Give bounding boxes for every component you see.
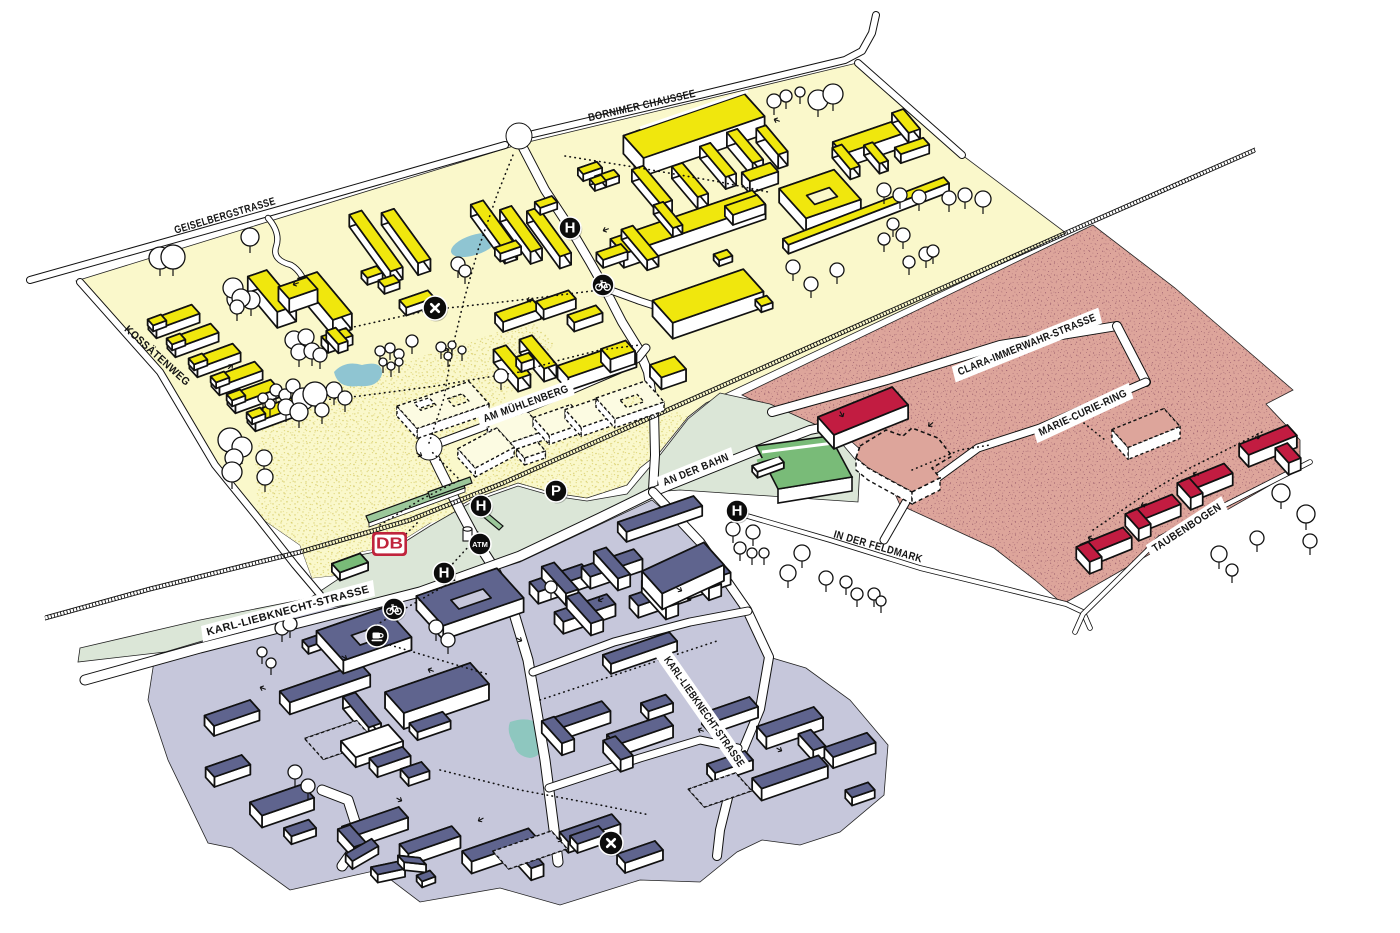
svg-text:H: H [476,498,487,515]
svg-text:H: H [565,220,576,237]
svg-text:H: H [439,565,450,582]
svg-text:H: H [732,503,743,520]
svg-text:ATM: ATM [472,540,488,549]
svg-text:P: P [551,483,561,500]
svg-text:DB: DB [376,536,403,553]
